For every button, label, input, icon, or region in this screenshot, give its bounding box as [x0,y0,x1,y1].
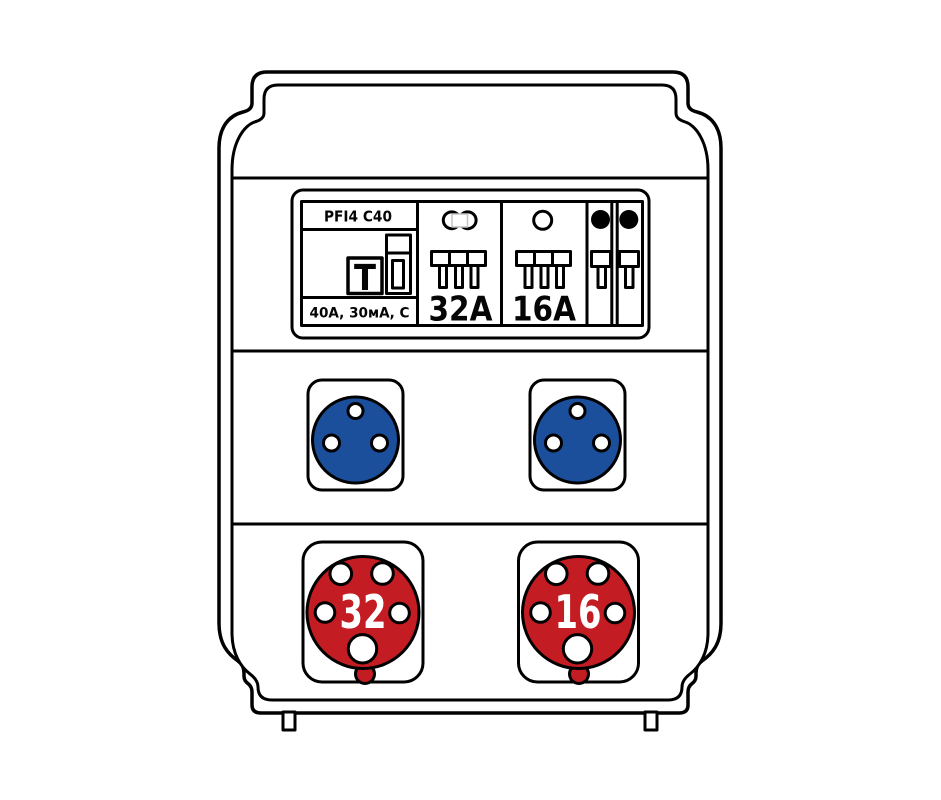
indicator-window-center [452,214,468,227]
socket-hole [546,563,568,585]
rcd-rating-label: 40A, 30мА, C [310,306,410,322]
breaker-16a-label: 16A [512,290,577,330]
breaker-16a-switch-cap [535,252,553,266]
rcd-test-button-letter: T [354,258,376,299]
aux-switch-stem [598,267,606,288]
status-dot [591,210,610,229]
breaker-32a-label: 32A [429,290,494,330]
socket-hole [594,435,610,451]
breaker-32a-switch-cap [450,252,468,266]
socket-hole [324,435,340,451]
breaker-32a-switch-stem [456,266,463,288]
socket-hole [372,563,394,585]
breaker-32a-switch-stem [471,266,478,288]
rcd-model-label: PFI4 C40 [324,208,392,226]
breaker-16a-switch-stem [541,266,548,288]
socket-hole [605,603,625,623]
blue-socket-right [530,380,625,490]
aux-switch-stem [626,267,634,288]
aux-switch-cap [592,252,611,267]
breaker-32a-switch-cap [468,252,486,266]
socket-hole [372,435,388,451]
aux-switch-cap [620,252,639,267]
socket-hole [587,563,609,585]
cee-socket-32-label: 32 [340,585,387,639]
breaker-16a-switch-cap [553,252,571,266]
socket-hole [315,603,335,623]
status-dot [619,210,638,229]
breaker-32a-switch-cap [432,252,450,266]
earth-pin-hole [570,404,585,419]
breaker-16a-switch-cap [517,252,535,266]
breaker-32a-switch-stem [440,266,447,288]
socket-hole [390,603,410,623]
earth-pin-hole [348,404,363,419]
breaker-16a-switch-stem [525,266,532,288]
diagram-canvas: PFI4 C40 40A, 30мА, C T 32A 16A [0,0,941,800]
rcd-switch-handle [393,261,404,289]
mounting-foot-right [645,712,657,730]
socket-hole [330,563,352,585]
cee-socket-16-label: 16 [555,585,602,639]
socket-hole [531,603,551,623]
blue-socket-left [308,380,403,490]
power-distribution-box-diagram: PFI4 C40 40A, 30мА, C T 32A 16A [0,0,941,800]
indicator-window-round [534,211,552,229]
breaker-16a-switch-stem [557,266,564,288]
mounting-foot-left [283,712,295,730]
socket-hole [546,435,562,451]
